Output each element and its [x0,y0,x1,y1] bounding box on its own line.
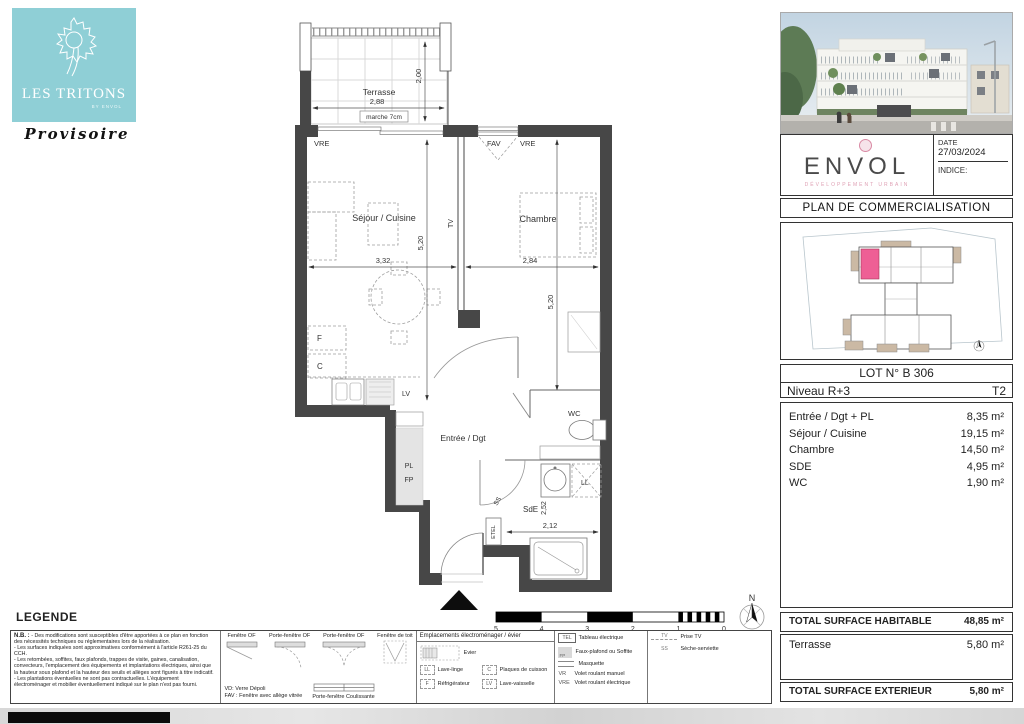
chambre-width-dim: 2,84 [523,256,538,265]
window-symbol: Fenêtre de toit [377,633,412,671]
wc-room: WC [513,390,606,459]
title-block: ENVOL DÉVELOPPEMENT URBAIN DATE 27/03/20… [780,134,1013,196]
lot-box: LOT N° B 306 Niveau R+3 T2 [780,364,1013,398]
table-row: Entrée / Dgt + PL8,35 m² [789,409,1004,426]
table-row: SDE4,95 m² [789,459,1004,476]
etel-label: ETEL [491,525,497,539]
entree-label: Entrée / Dgt [440,433,486,443]
sde-height-dim: 2,52 [541,501,548,515]
wc-label: WC [568,409,581,418]
indice-label: INDICE: [938,166,1008,175]
bottom-strip-black-segment [8,712,170,723]
window-openings: VRE FAV VRE [314,127,535,160]
sejour-label: Séjour / Cuisine [352,213,416,223]
appliances-header: Emplacements électroménager / évier [417,633,555,642]
compass-icon: N [740,593,764,629]
areas-table: Entrée / Dgt + PL8,35 m² Séjour / Cuisin… [780,402,1013,608]
legend-appliances: Emplacements électroménager / évier Evie… [417,631,556,703]
appliance-item: LVLave-vaisselle [482,679,552,689]
lot-type: T2 [992,383,1006,399]
appliance-item: LLLave-linge [420,665,482,675]
window-symbol: Porte-fenêtre OF [320,633,368,671]
legend-misc: TVPrise TV SSSèche-serviette [648,631,771,703]
lot-number: LOT N° B 306 [781,365,1012,383]
chambre-height-dim: 5,20 [546,295,555,310]
fav-label: FAV [487,139,501,148]
table-row: Séjour / Cuisine19,15 m² [789,426,1004,443]
washer-label: LL [581,480,589,487]
les-tritons-logo: LES TRITONS BY ENVOL [12,8,136,122]
sliding-door-symbol: Porte-fenêtre Coulissante [299,683,389,700]
legend-electrical: TELTableau électrique FPFaux-plafond ou … [555,631,648,703]
tv-label: TV [448,219,455,228]
legend-title: LEGENDE [16,610,78,624]
date-value: 27/03/2024 [938,147,1008,162]
developer-tagline: DÉVELOPPEMENT URBAIN [781,182,933,188]
site-key-plan [780,222,1013,360]
date-label: DATE [938,138,1008,147]
bedroom: Chambre [519,193,600,352]
document-title: PLAN DE COMMERCIALISATION [780,198,1013,218]
appliance-item: CPlaques de cuisson [482,665,552,675]
fridge-label: F [317,334,322,343]
shell-icon [44,14,104,84]
legend-windows: Fenêtre OF Porte-fenêtre OF Porte-fenêtr… [221,631,417,703]
status-provisoire: Provisoire [22,125,132,143]
highlighted-unit [861,249,879,279]
evier-item: Evier [420,645,552,661]
entrance-arrow-icon [440,590,478,610]
north-label: N [749,593,756,603]
plan-sheet: LES TRITONS BY ENVOL Provisoire [0,0,1024,724]
faux-plafond-label: FP [405,477,414,484]
hob-label: C [317,362,323,371]
terrace-label: Terrasse [363,87,396,97]
placard-label: PL [405,463,414,470]
table-row: WC1,90 m² [789,475,1004,492]
window-symbol: Porte-fenêtre OF [269,633,310,671]
sde-width-dim: 2,12 [543,521,558,530]
lot-level: Niveau R+3 [787,383,850,399]
envol-emblem-icon [859,139,872,152]
terrace: Terrasse 2,88 2,00 marche 7cm [300,23,451,127]
chambre-label: Chambre [519,214,556,224]
dishwasher-label: LV [402,391,410,398]
walls [295,125,612,592]
vre-left-label: VRE [314,139,329,148]
sejour-width-dim: 3,32 [376,256,391,265]
window-symbol: Fenêtre OF [224,633,260,671]
towel-dryer-label: SS [493,495,504,507]
nb-text: - Des modifications sont susceptibles d'… [14,633,214,688]
total-exterieur-row: TOTAL SURFACE EXTERIEUR5,80 m² [780,682,1013,702]
shower-room: LL SdE ETEL SS [480,460,601,579]
nb-label: N.B. : [14,633,30,639]
step-label: marche 7cm [366,114,402,121]
legend: N.B. : - Des modifications sont suscepti… [10,630,772,704]
living-room: Séjour / Cuisine F C LV TV [308,137,464,405]
entry-hall: Entrée / Dgt PL FP [396,337,518,610]
terrasse-row: Terrasse5,80 m² [780,634,1013,680]
terrace-depth-dim: 2,00 [414,69,423,84]
brand-title: LES TRITONS [12,86,136,103]
brand-by: BY ENVOL [92,104,122,109]
floor-plan: Terrasse 2,88 2,00 marche 7cm [288,2,780,636]
vre-right-label: VRE [520,139,535,148]
sejour-height-dim: 5,20 [416,236,425,251]
date-box: DATE 27/03/2024 INDICE: [933,135,1012,195]
building-photo [780,12,1013,134]
sde-label: SdE [523,505,538,514]
legend-notes: N.B. : - Des modifications sont suscepti… [11,631,221,703]
terrace-width-dim: 2,88 [370,97,385,106]
total-habitable-row: TOTAL SURFACE HABITABLE48,85 m² [780,612,1013,632]
table-row: Chambre14,50 m² [789,442,1004,459]
window-notes: VD: Verre Dépoli FAV : Fenêtre avec allè… [225,686,303,699]
developer-logo: ENVOL DÉVELOPPEMENT URBAIN [781,135,933,195]
appliance-item: FRéfrigérateur [420,679,482,689]
developer-name: ENVOL [781,153,933,181]
